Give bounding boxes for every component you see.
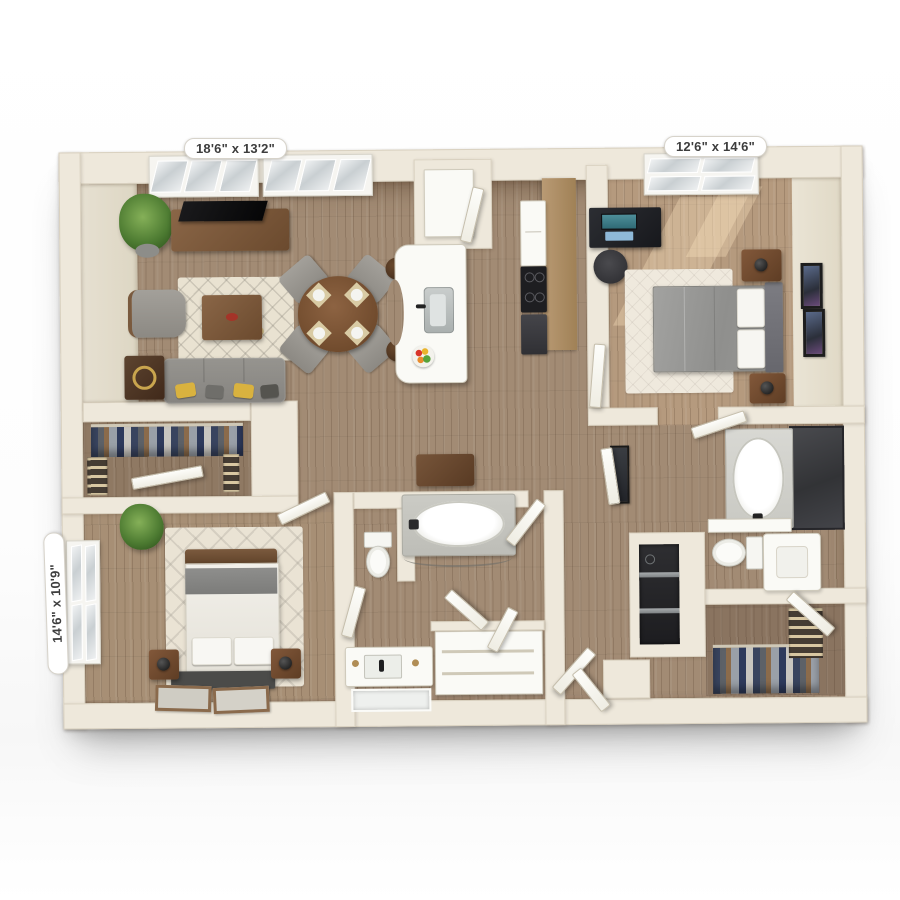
refrigerator-dark xyxy=(521,314,547,354)
hanging-clothes xyxy=(91,423,243,457)
linen-closet xyxy=(435,630,544,695)
tub-faucet xyxy=(409,519,419,529)
dimension-text: 14'6" x 10'9" xyxy=(47,564,65,643)
bedroom-left-window xyxy=(66,540,101,664)
bed-throw-blanket xyxy=(185,568,277,595)
toilet xyxy=(712,539,746,567)
shoe-shelves xyxy=(87,457,107,495)
wall-exterior-right xyxy=(840,146,867,723)
washer-dryer-stack xyxy=(639,544,680,644)
wall-bedroom-right-bottom-a xyxy=(588,407,658,426)
wall-bedroom-left-top xyxy=(62,495,299,514)
desk xyxy=(589,207,661,248)
bathtub-deck xyxy=(401,494,516,557)
floor-plan-page: { "floor_plan": { "dimension_labels": [ … xyxy=(0,0,900,900)
plate xyxy=(351,327,363,339)
floor-plan-render xyxy=(58,146,867,730)
television xyxy=(178,201,268,222)
plate xyxy=(313,289,325,301)
living-room-window xyxy=(263,154,373,197)
marble-shower-wall xyxy=(789,426,845,530)
plate xyxy=(313,327,325,339)
dimension-text: 18'6" x 13'2" xyxy=(196,141,275,156)
throw-pillow-yellow xyxy=(233,383,254,399)
throw-pillow-gray xyxy=(205,384,224,398)
throw-pillow-dark xyxy=(260,384,279,399)
wall-art xyxy=(213,686,270,714)
bathtub-deck xyxy=(725,428,794,529)
dimension-label-bedroom-right: 12'6" x 14'6" xyxy=(664,136,767,157)
monitor xyxy=(601,213,637,229)
bath-counter xyxy=(708,518,792,533)
hall-console xyxy=(416,454,474,487)
bathtub xyxy=(732,437,785,519)
table-lamp xyxy=(279,657,292,670)
wall-art xyxy=(800,263,822,309)
refrigerator-white xyxy=(520,200,547,266)
bath-vanity xyxy=(763,533,822,592)
bedroom-right-window xyxy=(644,152,759,195)
keyboard xyxy=(605,232,633,241)
plate xyxy=(351,289,363,301)
ring-sculpture xyxy=(132,366,156,390)
wall-living-closet xyxy=(83,401,251,422)
bed-headboard xyxy=(765,282,784,372)
fruit-bowl xyxy=(412,345,434,367)
table-lamp xyxy=(761,381,774,394)
office-chair xyxy=(593,250,627,284)
bed-pillow xyxy=(192,637,232,665)
living-room-window xyxy=(149,155,259,198)
coffee-table xyxy=(202,295,262,341)
wall-hall-stub xyxy=(603,659,650,698)
side-table xyxy=(124,356,164,400)
shoe-shelves xyxy=(223,454,239,492)
faucet xyxy=(416,304,426,308)
dimension-label-living: 18'6" x 13'2" xyxy=(184,138,287,159)
stove-cooktop xyxy=(521,266,547,312)
bed-pillow xyxy=(234,637,274,665)
dining-table xyxy=(298,276,379,353)
kitchen-counter xyxy=(542,178,577,350)
bed-pillow xyxy=(737,329,765,368)
dimension-text: 12'6" x 14'6" xyxy=(676,139,755,154)
bathtub xyxy=(413,501,505,548)
bathroom-vanity xyxy=(345,646,433,687)
wall-column xyxy=(251,400,299,497)
vanity-mirror xyxy=(351,688,431,712)
armchair xyxy=(128,289,186,338)
potted-plant xyxy=(120,504,164,550)
bed-pillow xyxy=(737,288,765,327)
vanity-faucet xyxy=(379,660,384,672)
island-sink xyxy=(424,287,454,333)
linen-shelf xyxy=(442,649,534,653)
table-decor xyxy=(226,313,238,321)
throw-pillow-yellow xyxy=(175,382,197,399)
table-lamp xyxy=(157,658,170,671)
wall-art xyxy=(803,309,825,357)
wall-art xyxy=(155,685,212,712)
table-lamp xyxy=(754,258,767,271)
